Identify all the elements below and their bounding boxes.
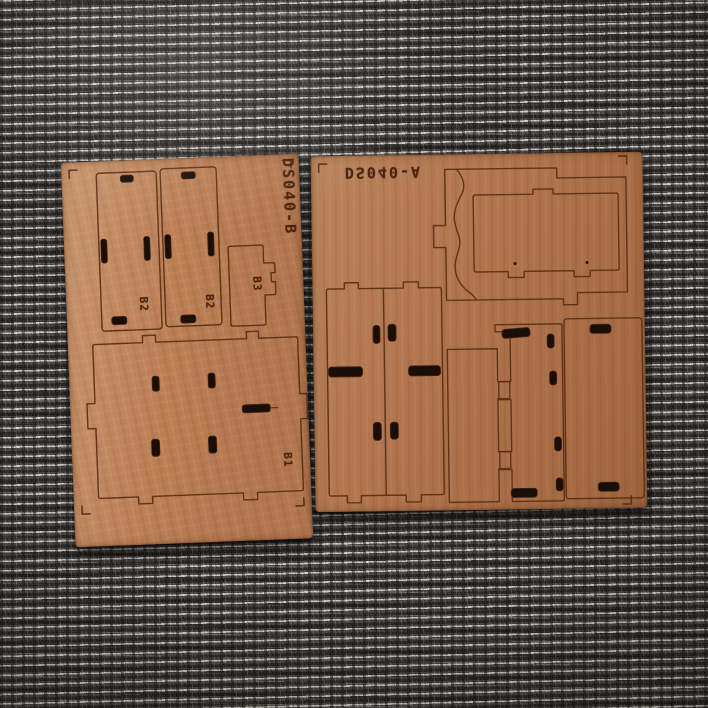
plywood-sheet-ds040-b: DS040-B B2 B2 B3 B1 <box>61 154 314 548</box>
part-outline-doors <box>326 282 444 504</box>
part-label-b2-1: B2 <box>137 296 151 312</box>
cut-outlines-left-sheet <box>61 154 314 548</box>
part-outline-b2-1 <box>96 171 162 331</box>
part-outline-centre-panel <box>495 324 564 502</box>
sheet-label-right: DS040-A <box>345 163 422 182</box>
part-label-b1: B1 <box>281 452 295 468</box>
plywood-sheet-ds040-a: DS040-A <box>311 152 648 513</box>
part-outline-right-panel <box>564 318 645 499</box>
part-outline-frame-panel <box>433 167 628 307</box>
part-label-b3: B3 <box>250 276 264 292</box>
sheet-label-left: DS040-B <box>279 158 300 236</box>
part-outline-b1 <box>84 329 310 505</box>
cut-outlines-right-sheet <box>311 152 648 513</box>
registration-marks <box>69 160 304 514</box>
registration-marks <box>319 156 632 508</box>
photo-laser-cut-sheets: DS040-B B2 B2 B3 B1 <box>0 0 708 708</box>
part-label-b2-2: B2 <box>203 294 217 310</box>
part-outline-stepped-strip <box>447 349 511 503</box>
